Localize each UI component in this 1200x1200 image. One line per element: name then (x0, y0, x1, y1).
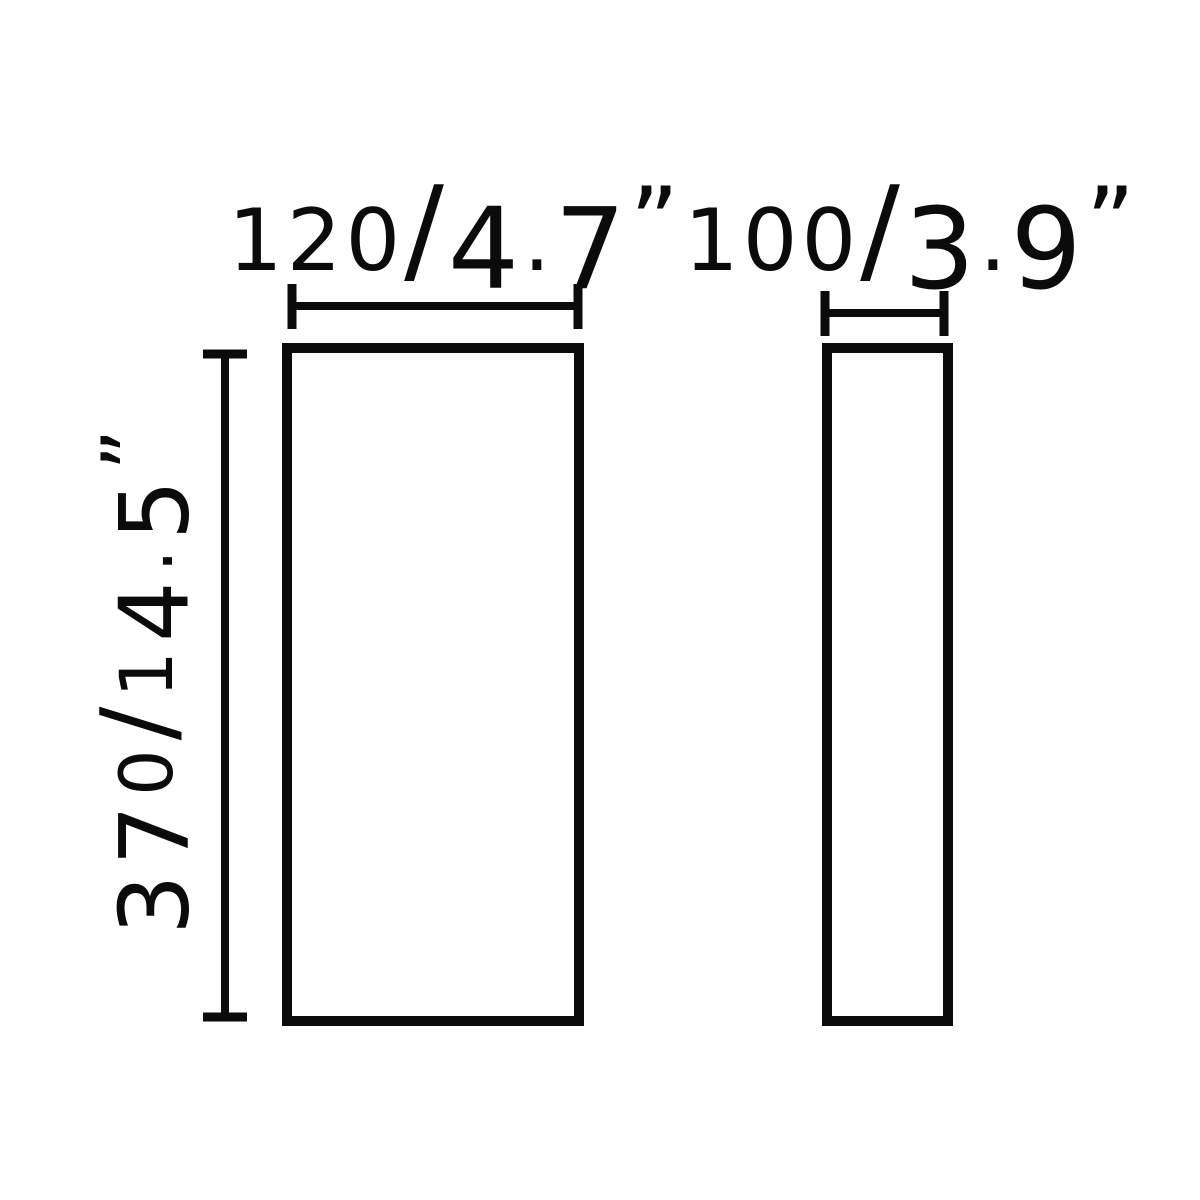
side-width-dimension: 100/3.9” (684, 160, 1139, 336)
height-label: 370/14.5” (79, 420, 210, 935)
front-width-dimension: 120/4.7” (228, 160, 683, 329)
side-width-label: 100/3.9” (684, 160, 1139, 315)
height-dimension: 370/14.5” (79, 354, 247, 1017)
diagram-canvas: 120/4.7” 100/3.9” 370/14.5” (0, 0, 1200, 1200)
dimension-diagram: 120/4.7” 100/3.9” 370/14.5” (0, 0, 1200, 1200)
front-view-outline (287, 348, 579, 1021)
side-view-outline (827, 348, 948, 1021)
